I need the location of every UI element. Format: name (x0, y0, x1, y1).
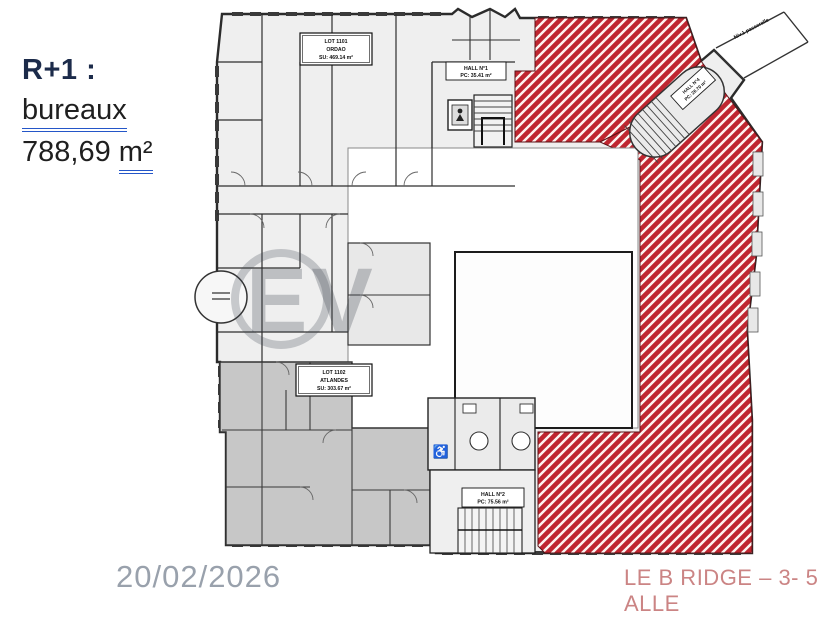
annotation-block: R+1 : bureaux 788,69 m² (22, 50, 212, 174)
date-stamp: 20/02/2026 (116, 559, 281, 595)
svg-text:PC: 35.41 m²: PC: 35.41 m² (460, 73, 491, 79)
staircase-top-icon (474, 95, 512, 147)
svg-text:SU: 469.14 m²: SU: 469.14 m² (319, 55, 353, 61)
wheelchair-icon: ♿ (433, 444, 449, 459)
wc-toilet (520, 404, 533, 413)
area-value: 788,69 (22, 136, 111, 168)
area-unit: m² (119, 136, 153, 174)
floor-label: R+1 : (22, 50, 212, 90)
svg-text:EV: EV (246, 250, 377, 352)
usage-label: bureaux (22, 94, 127, 132)
passerelle-label: Niv.1 passerelle (733, 17, 770, 41)
svg-text:SU: 303.67 m²: SU: 303.67 m² (317, 386, 351, 392)
wc-toilet (463, 404, 476, 413)
svg-text:ATLANDES: ATLANDES (320, 378, 348, 384)
wc-basin (470, 432, 488, 450)
svg-text:PC: 75.56 m²: PC: 75.56 m² (477, 500, 508, 506)
svg-text:LOT 1101: LOT 1101 (324, 39, 347, 45)
hall2-label: HALL N°2 PC: 75.56 m² (462, 488, 524, 507)
svg-text:HALL N°2: HALL N°2 (481, 492, 505, 498)
building-name-footer: LE B RIDGE – 3- 5 ALLE (624, 565, 829, 617)
svg-text:LOT 1102: LOT 1102 (322, 370, 345, 376)
staircase-bottom-icon (458, 508, 522, 553)
wc-block: ♿ (428, 398, 535, 470)
hall2-block (430, 470, 535, 553)
svg-text:ORDAO: ORDAO (326, 47, 345, 53)
lot1102-label: LOT 1102 ATLANDES SU: 303.67 m² (296, 364, 372, 396)
wc-basin (512, 432, 530, 450)
elevator-icon (448, 100, 472, 130)
lot1101-label: LOT 1101 ORDAO SU: 469.14 m² (300, 33, 372, 65)
hall1-label: HALL N°1 PC: 35.41 m² (446, 62, 506, 80)
watermark: EV (235, 250, 377, 352)
svg-text:HALL N°1: HALL N°1 (464, 66, 488, 72)
